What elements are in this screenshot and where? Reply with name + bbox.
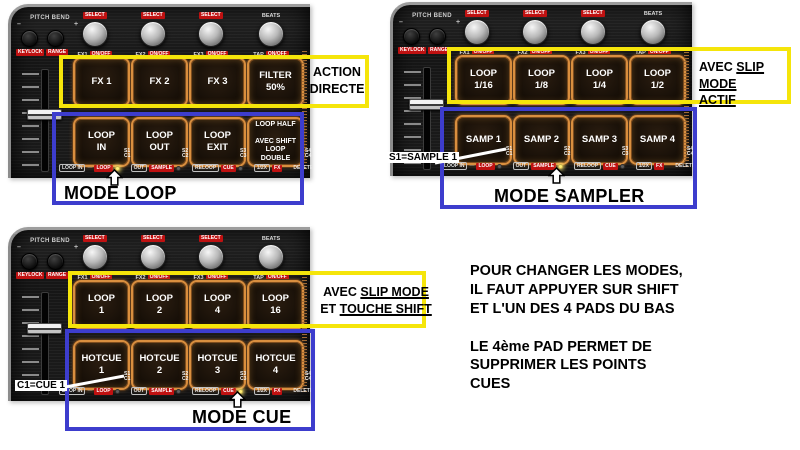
pitch-plus-sign: + bbox=[74, 244, 78, 251]
pitch-bend-plus-button bbox=[429, 28, 446, 45]
slip-shift-note: AVEC SLIP MODE ET TOUCHE SHIFT bbox=[318, 284, 434, 317]
pitch-minus-sign: – bbox=[399, 19, 403, 26]
fx3-knob bbox=[580, 19, 606, 45]
range-label: RANGE bbox=[46, 272, 68, 279]
fx2-knob bbox=[140, 244, 166, 270]
keylock-label: KEYLOCK bbox=[398, 47, 426, 54]
pitch-bend-minus-button bbox=[403, 28, 420, 45]
sample1-side-label: S1=SAMPLE 1 bbox=[387, 152, 459, 163]
fx3-knob bbox=[198, 244, 224, 270]
instructions-text-block: POUR CHANGER LES MODES, IL FAUT APPUYER … bbox=[470, 262, 728, 394]
tap-knob bbox=[258, 244, 284, 270]
pitch-fader-handle bbox=[409, 99, 444, 110]
pitch-bend-label: PITCH BEND bbox=[19, 238, 81, 244]
mode-cue-arrow-icon bbox=[229, 391, 246, 408]
keylock-label: KEYLOCK bbox=[16, 272, 44, 279]
pitch-fader-handle bbox=[27, 323, 62, 334]
tap-knob bbox=[640, 19, 666, 45]
beats-label: BEATS bbox=[251, 13, 291, 19]
pitch-bend-plus-button bbox=[47, 253, 64, 270]
beats-label: BEATS bbox=[251, 236, 291, 242]
cue1-side-label: C1=CUE 1 bbox=[15, 380, 67, 391]
beats-label: BEATS bbox=[633, 11, 673, 17]
fx3-select-label: SELECT bbox=[199, 12, 223, 19]
fx1-knob bbox=[82, 244, 108, 270]
pitch-fader-ticks bbox=[22, 73, 39, 168]
mode-sampler-caption: MODE SAMPLER bbox=[494, 186, 645, 207]
pitch-bend-plus-button bbox=[47, 30, 64, 47]
fx1-knob bbox=[82, 21, 108, 47]
pitch-plus-sign: + bbox=[74, 21, 78, 28]
fx2-select-label: SELECT bbox=[523, 10, 547, 17]
fx1-select-label: SELECT bbox=[465, 10, 489, 17]
tap-knob bbox=[258, 21, 284, 47]
fx3-knob bbox=[198, 21, 224, 47]
pitch-fader-ticks bbox=[22, 296, 39, 391]
fx1-select-label: SELECT bbox=[83, 235, 107, 242]
pitch-bend-label: PITCH BEND bbox=[401, 13, 463, 19]
fx2-select-label: SELECT bbox=[141, 235, 165, 242]
mode-loop-arrow-icon bbox=[106, 169, 123, 186]
pitch-bend-minus-button bbox=[21, 30, 38, 47]
pitch-fader-track bbox=[41, 69, 49, 172]
mode-sampler-arrow-icon bbox=[548, 167, 565, 184]
mode-loop-caption: MODE LOOP bbox=[64, 183, 177, 204]
fx2-select-label: SELECT bbox=[141, 12, 165, 19]
pitch-bend-minus-button bbox=[21, 253, 38, 270]
fx3-select-label: SELECT bbox=[581, 10, 605, 17]
instructions-paragraph-2: LE 4ème PAD PERMET DE SUPPRIMER LES POIN… bbox=[470, 338, 728, 395]
fx1-select-label: SELECT bbox=[83, 12, 107, 19]
fx2-knob bbox=[522, 19, 548, 45]
mode-cue-caption: MODE CUE bbox=[192, 407, 291, 428]
pitch-plus-sign: + bbox=[456, 19, 460, 26]
pitch-bend-label: PITCH BEND bbox=[19, 15, 81, 21]
slip-mode-actif-note: AVEC SLIP MODE ACTIF bbox=[699, 59, 794, 109]
fx3-select-label: SELECT bbox=[199, 235, 223, 242]
action-directe-note: ACTIONDIRECTE bbox=[303, 64, 371, 97]
pad4-corner-label: S4C4 bbox=[305, 149, 311, 159]
fx1-knob bbox=[464, 19, 490, 45]
fx2-knob bbox=[140, 21, 166, 47]
pitch-minus-sign: – bbox=[17, 21, 21, 28]
instructions-paragraph-1: POUR CHANGER LES MODES, IL FAUT APPUYER … bbox=[470, 262, 728, 319]
keylock-label: KEYLOCK bbox=[16, 49, 44, 56]
pitch-minus-sign: – bbox=[17, 244, 21, 251]
